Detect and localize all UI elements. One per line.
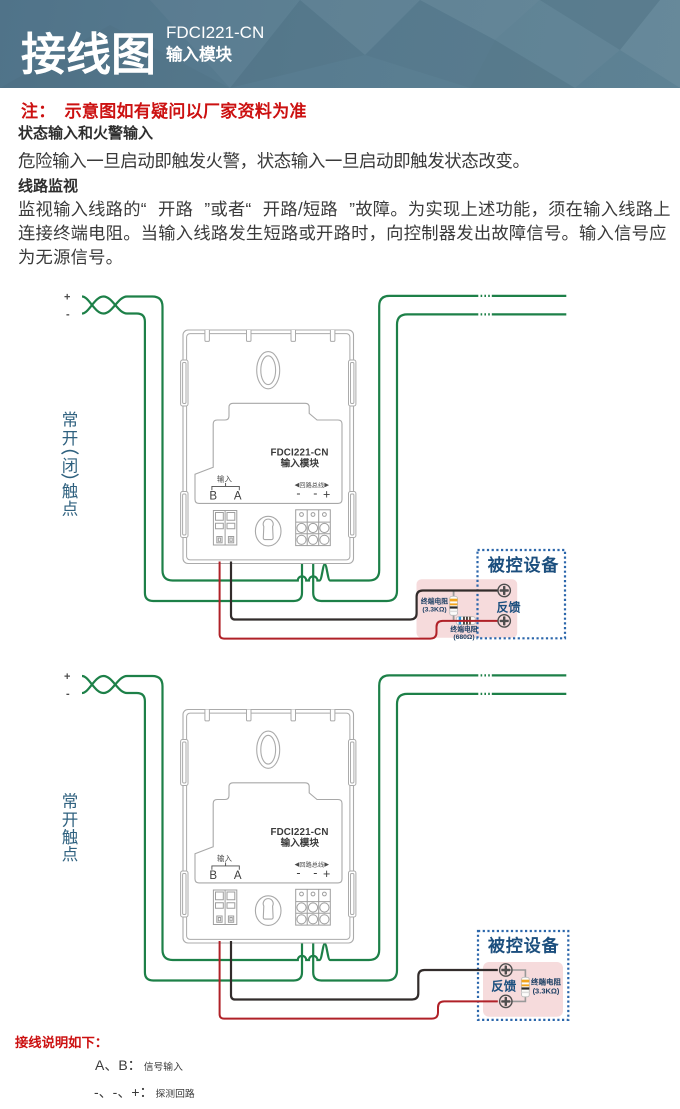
svg-text:终端电阻: 终端电阻 xyxy=(421,596,448,605)
svg-text:开: 开 xyxy=(62,812,79,830)
svg-text:(680Ω): (680Ω) xyxy=(453,634,474,641)
svg-text:(3.3KΩ): (3.3KΩ) xyxy=(533,987,560,996)
svg-text:终端电阻: 终端电阻 xyxy=(530,977,561,987)
svg-text:触: 触 xyxy=(62,828,79,847)
svg-text:触: 触 xyxy=(62,482,79,501)
svg-text:点: 点 xyxy=(62,845,79,864)
svg-text:常: 常 xyxy=(62,792,79,811)
svg-text:常: 常 xyxy=(62,411,79,430)
svg-text:终端电阻: 终端电阻 xyxy=(450,624,477,633)
svg-text:被控设备: 被控设备 xyxy=(488,555,560,575)
svg-text:被控设备: 被控设备 xyxy=(488,935,560,955)
svg-text:闭: 闭 xyxy=(62,457,79,476)
svg-text:开: 开 xyxy=(62,430,79,448)
svg-text:反馈: 反馈 xyxy=(491,979,517,994)
svg-text:点: 点 xyxy=(62,500,79,519)
svg-text:(3.3KΩ): (3.3KΩ) xyxy=(422,606,446,613)
svg-text:反馈: 反馈 xyxy=(496,600,520,615)
